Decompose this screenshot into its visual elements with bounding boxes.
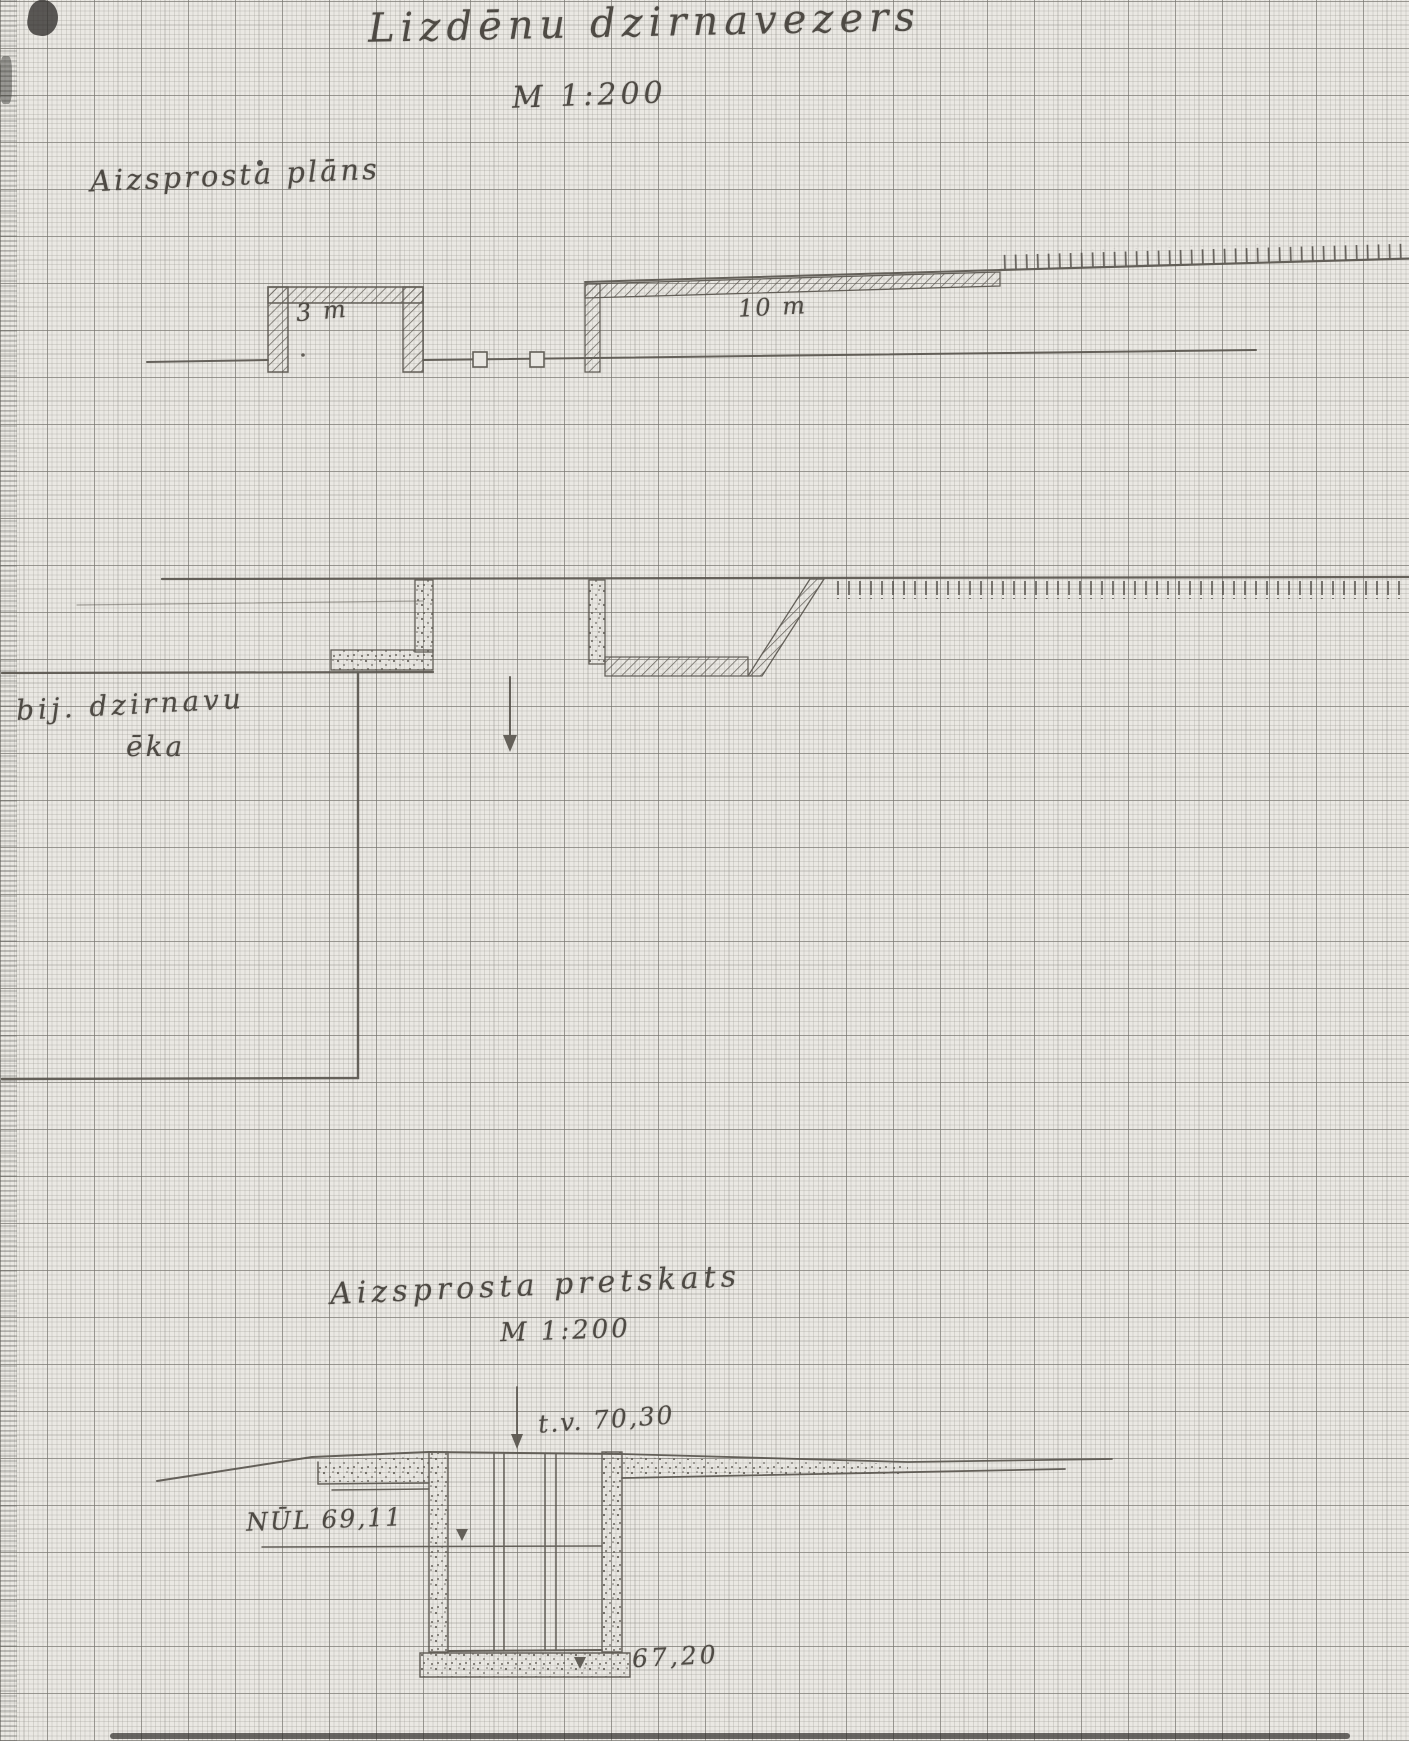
front-crest-line xyxy=(429,1452,622,1454)
front-flume-right-wall xyxy=(602,1452,622,1652)
pencil-dot xyxy=(301,353,305,357)
intake-width-dimension: 3 m xyxy=(295,295,349,327)
crest-level-marker xyxy=(511,1387,523,1449)
plan-lower-bottom-line xyxy=(2,672,433,673)
normal-water-level-line xyxy=(262,1546,602,1547)
plan-baseline xyxy=(147,350,1256,362)
bottom-level-text: 67,20 xyxy=(631,1640,719,1673)
front-left-shoulder xyxy=(318,1456,429,1490)
spillway-width-dimension: 10 m xyxy=(737,291,807,323)
front-flume-left-wall xyxy=(429,1452,448,1652)
plan-left-wing-wall xyxy=(331,580,433,670)
plan-channel-left-wall xyxy=(585,284,600,372)
plan-lower-faint-line xyxy=(77,601,423,605)
drawing-linework xyxy=(0,0,1409,1741)
gate-post-left xyxy=(473,352,487,367)
plan-lower-baseline xyxy=(162,577,1409,579)
front-view-scale: M 1:200 xyxy=(500,1314,632,1349)
normal-water-level-text: NŪL 69,11 xyxy=(246,1502,404,1536)
normal-water-level-marker xyxy=(456,1529,468,1541)
plan-embankment-ticks-upper xyxy=(999,241,1409,270)
flow-direction-arrow xyxy=(503,677,517,752)
sheet-scale: M 1:200 xyxy=(511,75,667,115)
plan-right-outlet-wall xyxy=(589,579,824,676)
front-foundation-slab xyxy=(420,1653,630,1677)
plan-view-lower-drawing xyxy=(2,577,1409,1079)
front-gate-guides xyxy=(494,1454,556,1650)
front-flume-floor xyxy=(448,1650,602,1651)
gate-post-right xyxy=(530,352,544,367)
plan-embankment-ticks-lower xyxy=(833,581,1409,599)
building-label-line2: ēka xyxy=(126,730,185,763)
scanned-drawing-sheet: Lizdēnu dzirnavezers M 1:200 Aizsprosta … xyxy=(0,0,1409,1741)
